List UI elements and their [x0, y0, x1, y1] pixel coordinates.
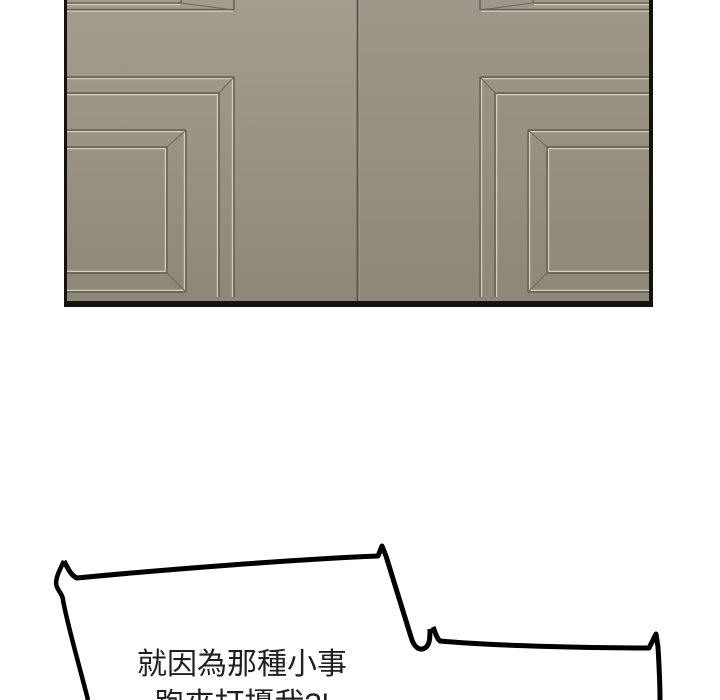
speech-bubble-text: 就因為那種小事 跑來打擾我?! — [117, 645, 367, 700]
speech-line-1: 就因為那種小事 — [117, 645, 367, 685]
speech-line-2: 跑來打擾我?! — [117, 685, 367, 700]
speech-bubble-right — [433, 627, 660, 700]
door-artwork-panel — [64, 0, 653, 307]
comic-page: 就因為那種小事 跑來打擾我?! — [0, 0, 720, 700]
speech-bubble-left — [64, 546, 430, 649]
door-artwork-image — [67, 0, 649, 301]
door-seam — [357, 0, 360, 301]
